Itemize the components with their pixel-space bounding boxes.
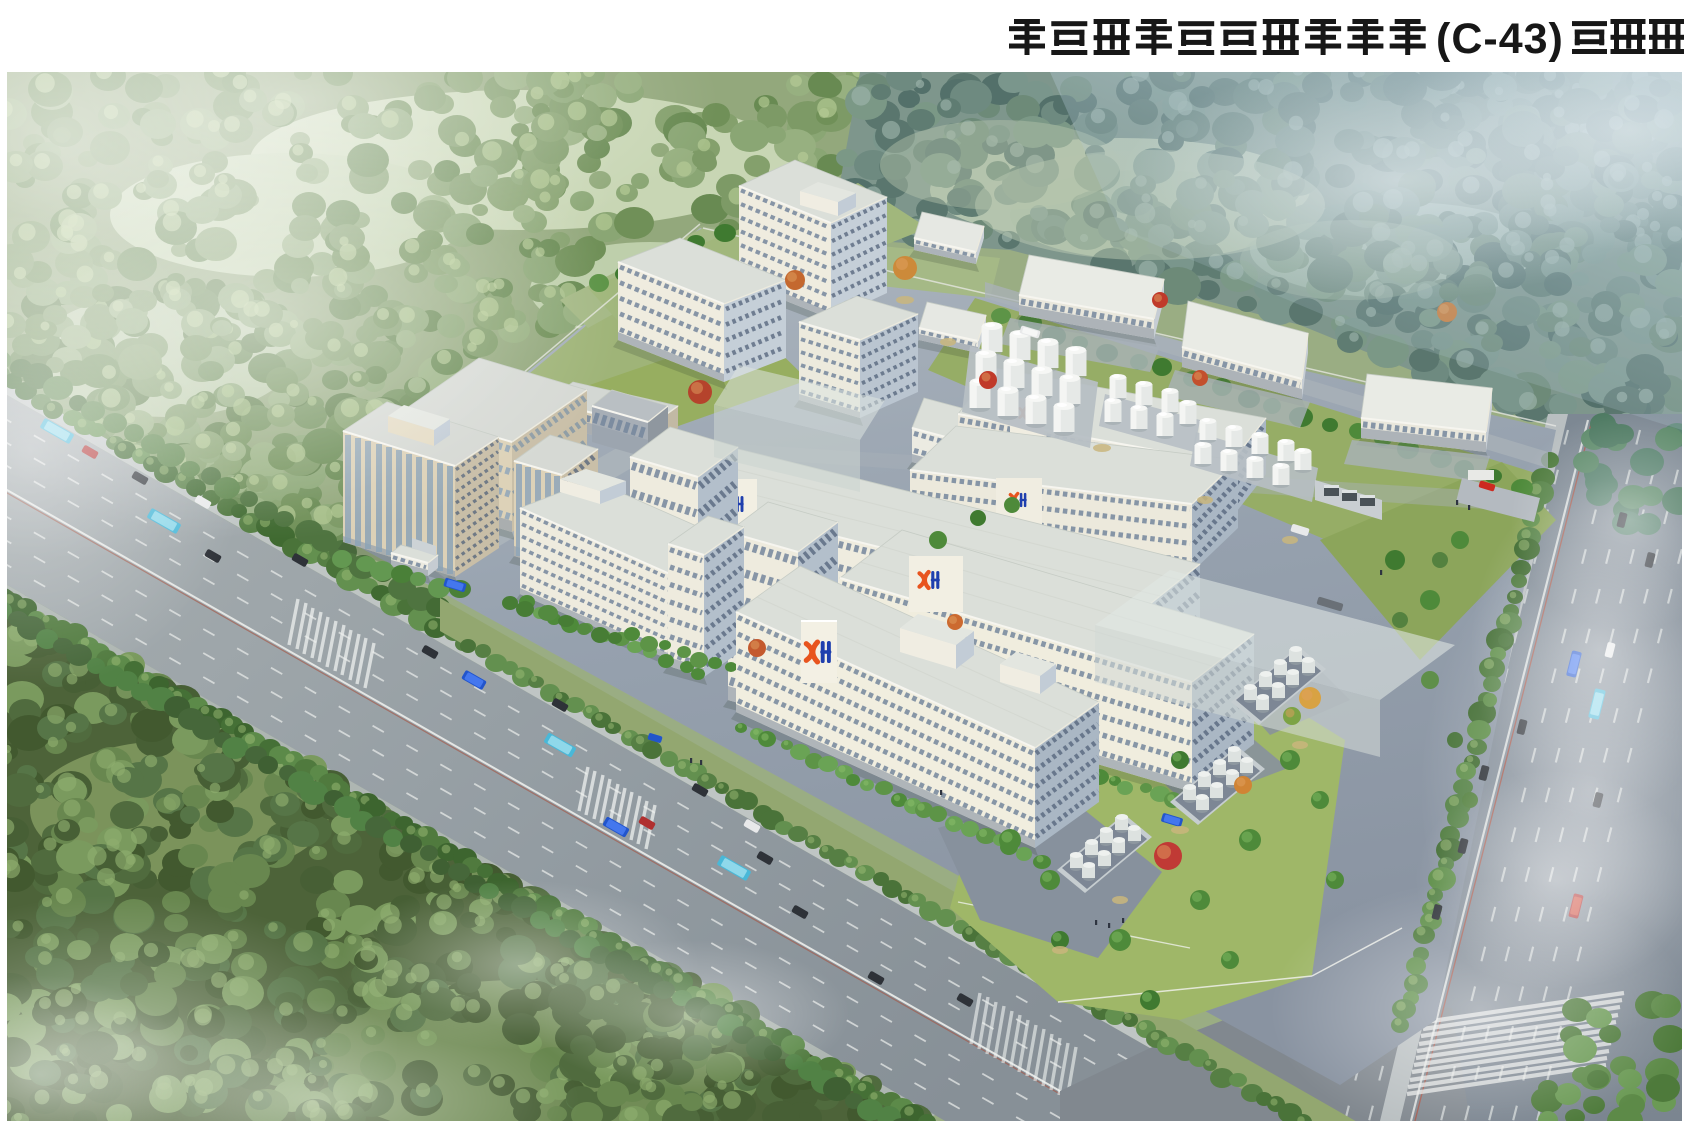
svg-text:(C-43): (C-43) [1436,15,1564,63]
